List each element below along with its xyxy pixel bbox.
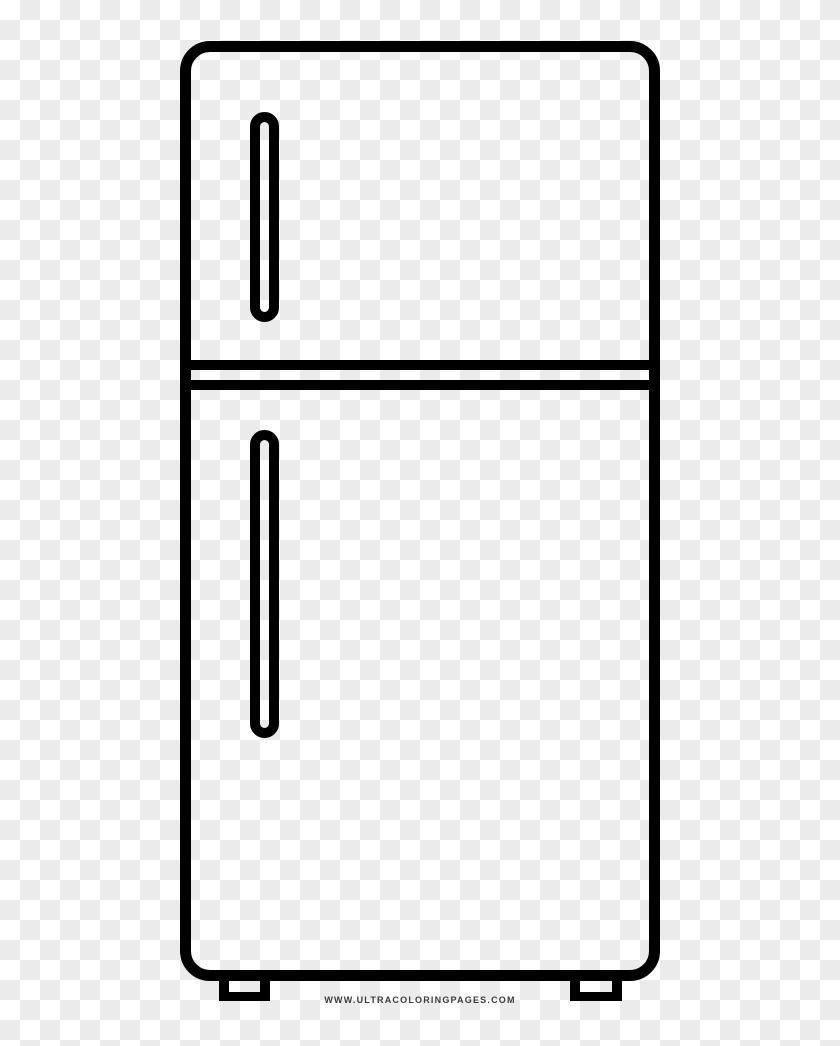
watermark-text: WWW.ULTRACOLORINGPAGES.COM — [0, 995, 840, 1005]
door-divider-line-upper — [190, 360, 650, 370]
freezer-door-handle-icon — [250, 112, 279, 322]
fridge-door-handle-icon — [250, 430, 279, 738]
transparent-checkerboard-background: WWW.ULTRACOLORINGPAGES.COM — [0, 0, 840, 1046]
door-divider-line-lower — [190, 380, 650, 390]
